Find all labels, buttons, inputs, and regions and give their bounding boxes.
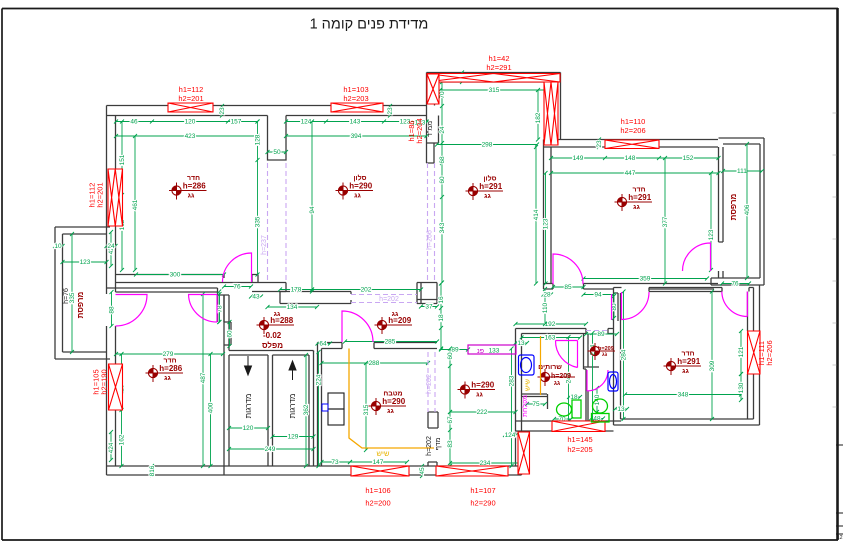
svg-text:157: 157	[231, 119, 242, 126]
svg-text:23: 23	[387, 107, 394, 115]
svg-text:110: 110	[542, 302, 549, 313]
svg-text:h=290: h=290	[349, 182, 372, 191]
svg-text:ממ"ד: ממ"ד	[427, 121, 434, 137]
svg-text:124: 124	[301, 119, 312, 126]
svg-text:285: 285	[385, 339, 396, 346]
svg-text:גג: גג	[387, 408, 394, 415]
svg-text:24: 24	[439, 126, 446, 134]
svg-text:גג: גג	[164, 375, 171, 382]
svg-text:406: 406	[744, 204, 751, 215]
svg-text:68: 68	[439, 156, 446, 164]
svg-text:23: 23	[219, 107, 226, 115]
svg-text:h=202: h=202	[379, 296, 399, 303]
svg-text:362: 362	[303, 404, 310, 415]
svg-text:249: 249	[265, 446, 276, 453]
svg-text:43: 43	[252, 294, 260, 301]
svg-text:h2=206: h2=206	[620, 126, 645, 135]
svg-text:123: 123	[543, 218, 550, 229]
svg-text:222: 222	[477, 409, 488, 416]
svg-text:143: 143	[350, 119, 361, 126]
svg-text:202: 202	[361, 287, 372, 294]
svg-text:h=209: h=209	[388, 316, 411, 325]
svg-text:50: 50	[273, 149, 281, 156]
svg-text:60: 60	[439, 176, 446, 184]
svg-text:h1=107: h1=107	[470, 486, 495, 495]
svg-text:h2=201: h2=201	[178, 94, 203, 103]
svg-text:133: 133	[489, 348, 500, 355]
svg-text:67: 67	[447, 416, 454, 424]
svg-text:162: 162	[119, 434, 126, 445]
svg-text:377: 377	[662, 216, 669, 227]
svg-text:111: 111	[737, 168, 747, 175]
svg-text:315: 315	[489, 87, 500, 94]
svg-text:78: 78	[217, 305, 224, 313]
svg-text:מפלס: מפלס	[262, 341, 283, 350]
svg-text:גג: גג	[188, 193, 195, 200]
svg-text:מדרגות: מדרגות	[288, 394, 297, 419]
svg-text:80: 80	[611, 303, 618, 311]
svg-text:13: 13	[517, 340, 525, 347]
svg-text:מדרגות: מדרגות	[244, 394, 253, 419]
svg-text:h=237: h=237	[261, 235, 268, 255]
svg-text:h=288: h=288	[270, 316, 293, 325]
svg-text:גג: גג	[633, 204, 640, 211]
svg-text:מרפסת: מרפסת	[76, 291, 85, 318]
svg-text:h=286: h=286	[159, 364, 182, 373]
svg-text:23: 23	[596, 140, 603, 148]
svg-text:37: 37	[425, 304, 433, 311]
svg-text:13: 13	[617, 406, 625, 413]
svg-text:335: 335	[255, 216, 262, 227]
svg-text:h=290: h=290	[471, 381, 494, 390]
svg-text:גג: גג	[476, 392, 483, 399]
svg-text:152: 152	[683, 155, 694, 162]
svg-text:מרפסת: מרפסת	[729, 193, 738, 220]
svg-text:359: 359	[640, 276, 651, 283]
svg-text:h1=42: h1=42	[488, 54, 509, 63]
svg-text:גג: גג	[554, 380, 560, 387]
svg-text:גג: גג	[354, 193, 361, 200]
svg-text:h1=110: h1=110	[621, 117, 646, 126]
svg-text:h=291: h=291	[479, 182, 502, 191]
svg-text:שיש: שיש	[525, 379, 532, 391]
svg-text:28: 28	[543, 292, 551, 299]
svg-text:85: 85	[564, 284, 572, 291]
svg-text:h2=291: h2=291	[486, 63, 511, 72]
svg-text:h2=205: h2=205	[567, 445, 592, 454]
svg-text:מדידת פנים קומה 1: מדידת פנים קומה 1	[310, 17, 429, 33]
svg-text:h1=103: h1=103	[343, 85, 368, 94]
svg-text:h2=190: h2=190	[100, 369, 109, 394]
svg-text:64: 64	[319, 341, 327, 348]
svg-text:60: 60	[447, 352, 454, 360]
svg-text:גג: גג	[484, 193, 491, 200]
svg-text:816: 816	[149, 465, 156, 476]
svg-text:461: 461	[132, 199, 139, 210]
svg-text:149: 149	[573, 155, 584, 162]
svg-text:224: 224	[316, 374, 323, 385]
svg-text:גג: גג	[602, 352, 608, 358]
svg-text:94: 94	[309, 206, 316, 214]
svg-text:18: 18	[438, 314, 445, 322]
svg-text:487: 487	[200, 372, 207, 383]
svg-text:60: 60	[227, 330, 234, 338]
svg-text:-0.02: -0.02	[263, 331, 282, 340]
svg-text:447: 447	[625, 170, 636, 177]
svg-text:120: 120	[185, 119, 196, 126]
svg-text:h2=204: h2=204	[415, 118, 424, 143]
svg-text:423: 423	[185, 133, 196, 140]
svg-text:309: 309	[709, 360, 716, 371]
svg-text:h1=112: h1=112	[179, 85, 204, 94]
svg-text:129: 129	[288, 434, 299, 441]
svg-text:147: 147	[373, 459, 384, 466]
svg-text:94: 94	[594, 292, 602, 299]
svg-text:h=291: h=291	[628, 193, 651, 202]
svg-text:h2=290: h2=290	[470, 499, 495, 508]
svg-text:284: 284	[621, 349, 628, 360]
svg-text:83: 83	[447, 440, 454, 448]
svg-text:12: 12	[837, 535, 843, 541]
svg-text:123: 123	[80, 259, 91, 266]
svg-text:88: 88	[109, 306, 116, 314]
svg-text:h=290: h=290	[382, 397, 405, 406]
svg-text:288: 288	[369, 360, 380, 367]
svg-text:163: 163	[545, 335, 556, 342]
svg-text:283: 283	[509, 375, 516, 386]
svg-text:424: 424	[108, 442, 115, 453]
svg-text:10: 10	[54, 243, 62, 250]
svg-text:h=202: h=202	[426, 374, 433, 394]
svg-text:298: 298	[482, 142, 493, 149]
svg-text:182: 182	[535, 112, 542, 123]
svg-text:h2=203: h2=203	[343, 94, 368, 103]
svg-text:45: 45	[419, 467, 426, 475]
svg-text:h=291: h=291	[677, 357, 700, 366]
svg-text:128: 128	[255, 134, 262, 145]
svg-text:75: 75	[532, 401, 540, 408]
svg-text:89: 89	[597, 331, 605, 338]
svg-text:76: 76	[731, 281, 739, 288]
svg-text:134: 134	[287, 304, 298, 311]
svg-text:124: 124	[505, 432, 516, 439]
svg-text:16: 16	[438, 296, 445, 304]
svg-text:46: 46	[130, 119, 138, 126]
svg-text:70: 70	[439, 91, 446, 99]
svg-text:h=202: h=202	[426, 436, 433, 456]
svg-text:73: 73	[331, 459, 339, 466]
svg-text:שיש: שיש	[377, 449, 390, 458]
svg-text:24: 24	[107, 243, 115, 250]
svg-text:123: 123	[708, 229, 715, 240]
svg-text:348: 348	[678, 392, 689, 399]
svg-text:178: 178	[291, 287, 302, 294]
svg-text:300: 300	[170, 272, 181, 279]
svg-text:130: 130	[738, 382, 745, 393]
svg-text:h=286: h=286	[183, 182, 206, 191]
svg-text:h=209: h=209	[551, 373, 571, 380]
svg-text:343: 343	[439, 222, 446, 233]
svg-text:151: 151	[119, 154, 126, 165]
svg-text:שרותים: שרותים	[538, 364, 562, 371]
svg-text:h1=145: h1=145	[567, 435, 592, 444]
svg-text:מקלחת: מקלחת	[521, 395, 529, 417]
svg-text:76: 76	[233, 284, 241, 291]
svg-text:מדף: מדף	[435, 437, 442, 450]
svg-text:h2=201: h2=201	[96, 182, 105, 207]
svg-text:400: 400	[208, 402, 215, 413]
svg-text:פנ: פנ	[477, 348, 484, 355]
svg-text:148: 148	[625, 155, 636, 162]
svg-text:121: 121	[738, 346, 745, 357]
svg-text:120: 120	[243, 425, 254, 432]
svg-text:394: 394	[351, 133, 362, 140]
svg-text:h2=206: h2=206	[765, 340, 774, 365]
svg-text:414: 414	[533, 209, 540, 220]
svg-text:h=76: h=76	[63, 288, 70, 304]
svg-text:h=266: h=266	[427, 230, 434, 250]
svg-text:h2=200: h2=200	[365, 499, 390, 508]
svg-text:h1=106: h1=106	[365, 486, 390, 495]
svg-text:גג: גג	[682, 368, 689, 375]
